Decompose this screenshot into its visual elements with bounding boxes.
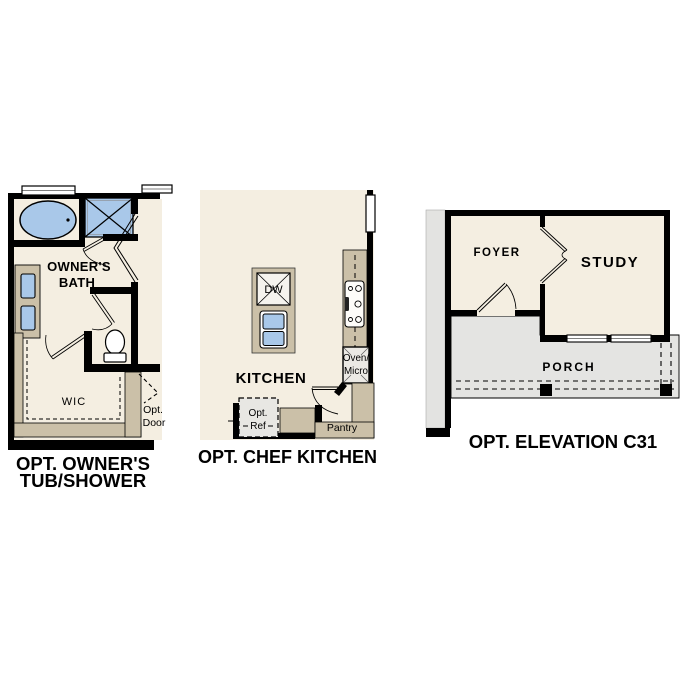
owners-bath-label-line1: OWNER'S (47, 259, 111, 274)
elevation-c31-drawing: FOYER STUDY PORCH (420, 195, 687, 441)
wic-label: WIC (62, 396, 86, 408)
kitchen-label: KITCHEN (236, 370, 307, 387)
caption-elevation-c31: OPT. ELEVATION C31 (438, 433, 687, 450)
porch-label: PORCH (542, 360, 595, 374)
caption-chef-kitchen: OPT. CHEF KITCHEN (195, 449, 380, 466)
study-label: STUDY (581, 254, 639, 271)
caption-line2: TUB/SHOWER (0, 473, 166, 490)
vanity-sinks (15, 265, 40, 338)
sink-icon (260, 311, 287, 348)
window-icon (366, 195, 375, 232)
chef-kitchen-drawing: KITCHEN DW Oven/ Micro Opt. Ref Pantry (195, 185, 380, 443)
porch-post (660, 384, 672, 396)
caption-owners-tub-shower: OPT. OWNER'S TUB/SHOWER (0, 456, 166, 489)
study-floor (540, 216, 670, 341)
kitchen-island (252, 268, 295, 353)
oven-label-line2: Micro (344, 366, 368, 377)
dw-label: DW (264, 284, 283, 296)
floorplan-elevation-c31: FOYER STUDY PORCH OPT. ELEVATION C31 (420, 195, 687, 457)
base-counter (280, 408, 315, 433)
floorplan-sheet: { "page": { "background": "#ffffff" }, "… (0, 0, 687, 687)
oven-label-line1: Oven/ (343, 353, 369, 364)
opt-door-label-line2: Door (143, 417, 166, 429)
foyer-label: FOYER (473, 247, 520, 259)
toilet-icon (104, 330, 126, 362)
owners-tub-shower-drawing: OWNER'S BATH WIC Opt. Door (0, 183, 180, 455)
pantry-label: Pantry (327, 422, 358, 434)
owners-bath-label-line2: BATH (59, 275, 95, 290)
floorplan-owners-tub-shower: OWNER'S BATH WIC Opt. Door OPT. OWNER'S … (0, 183, 180, 495)
foyer-floor (451, 216, 540, 316)
opt-door-label-line1: Opt. (143, 404, 163, 416)
floorplan-chef-kitchen: KITCHEN DW Oven/ Micro Opt. Ref Pantry O… (195, 185, 380, 469)
ref-label-line1: Opt. (249, 408, 268, 419)
ref-label-line2: Ref (250, 421, 266, 432)
porch-post (540, 384, 552, 396)
